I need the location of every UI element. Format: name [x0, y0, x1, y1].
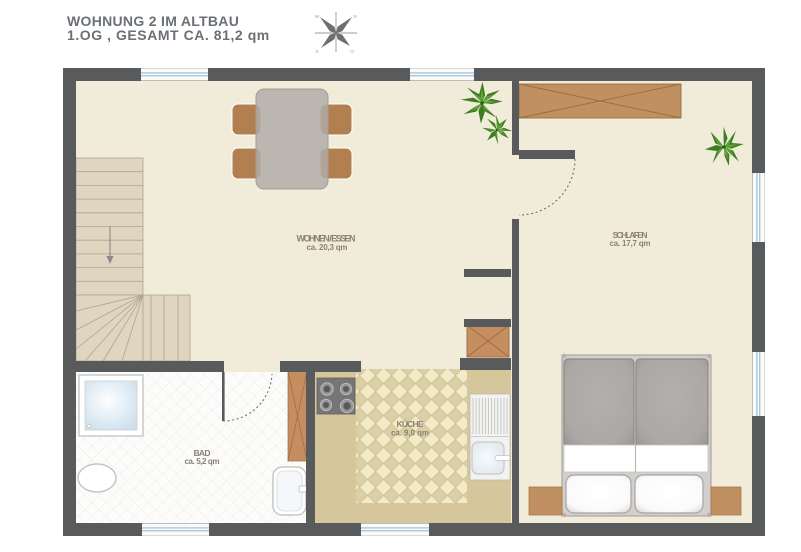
svg-text:O: O [350, 49, 354, 54]
svg-text:S: S [315, 49, 318, 54]
svg-text:ca. 5,2 qm: ca. 5,2 qm [185, 457, 220, 466]
svg-text:WOHNEN / ESSEN: WOHNEN / ESSEN [297, 234, 356, 244]
svg-text:W: W [315, 14, 320, 19]
svg-text:1.OG , GESAMT CA. 81,2 qm: 1.OG , GESAMT CA. 81,2 qm [67, 27, 270, 43]
svg-text:ca. 17,7 qm: ca. 17,7 qm [610, 239, 651, 248]
svg-text:N: N [353, 14, 356, 19]
svg-text:KÜCHE: KÜCHE [397, 419, 424, 429]
svg-text:ca. 9,0 qm: ca. 9,0 qm [391, 429, 429, 438]
svg-text:ca. 20,3 qm: ca. 20,3 qm [307, 243, 348, 252]
